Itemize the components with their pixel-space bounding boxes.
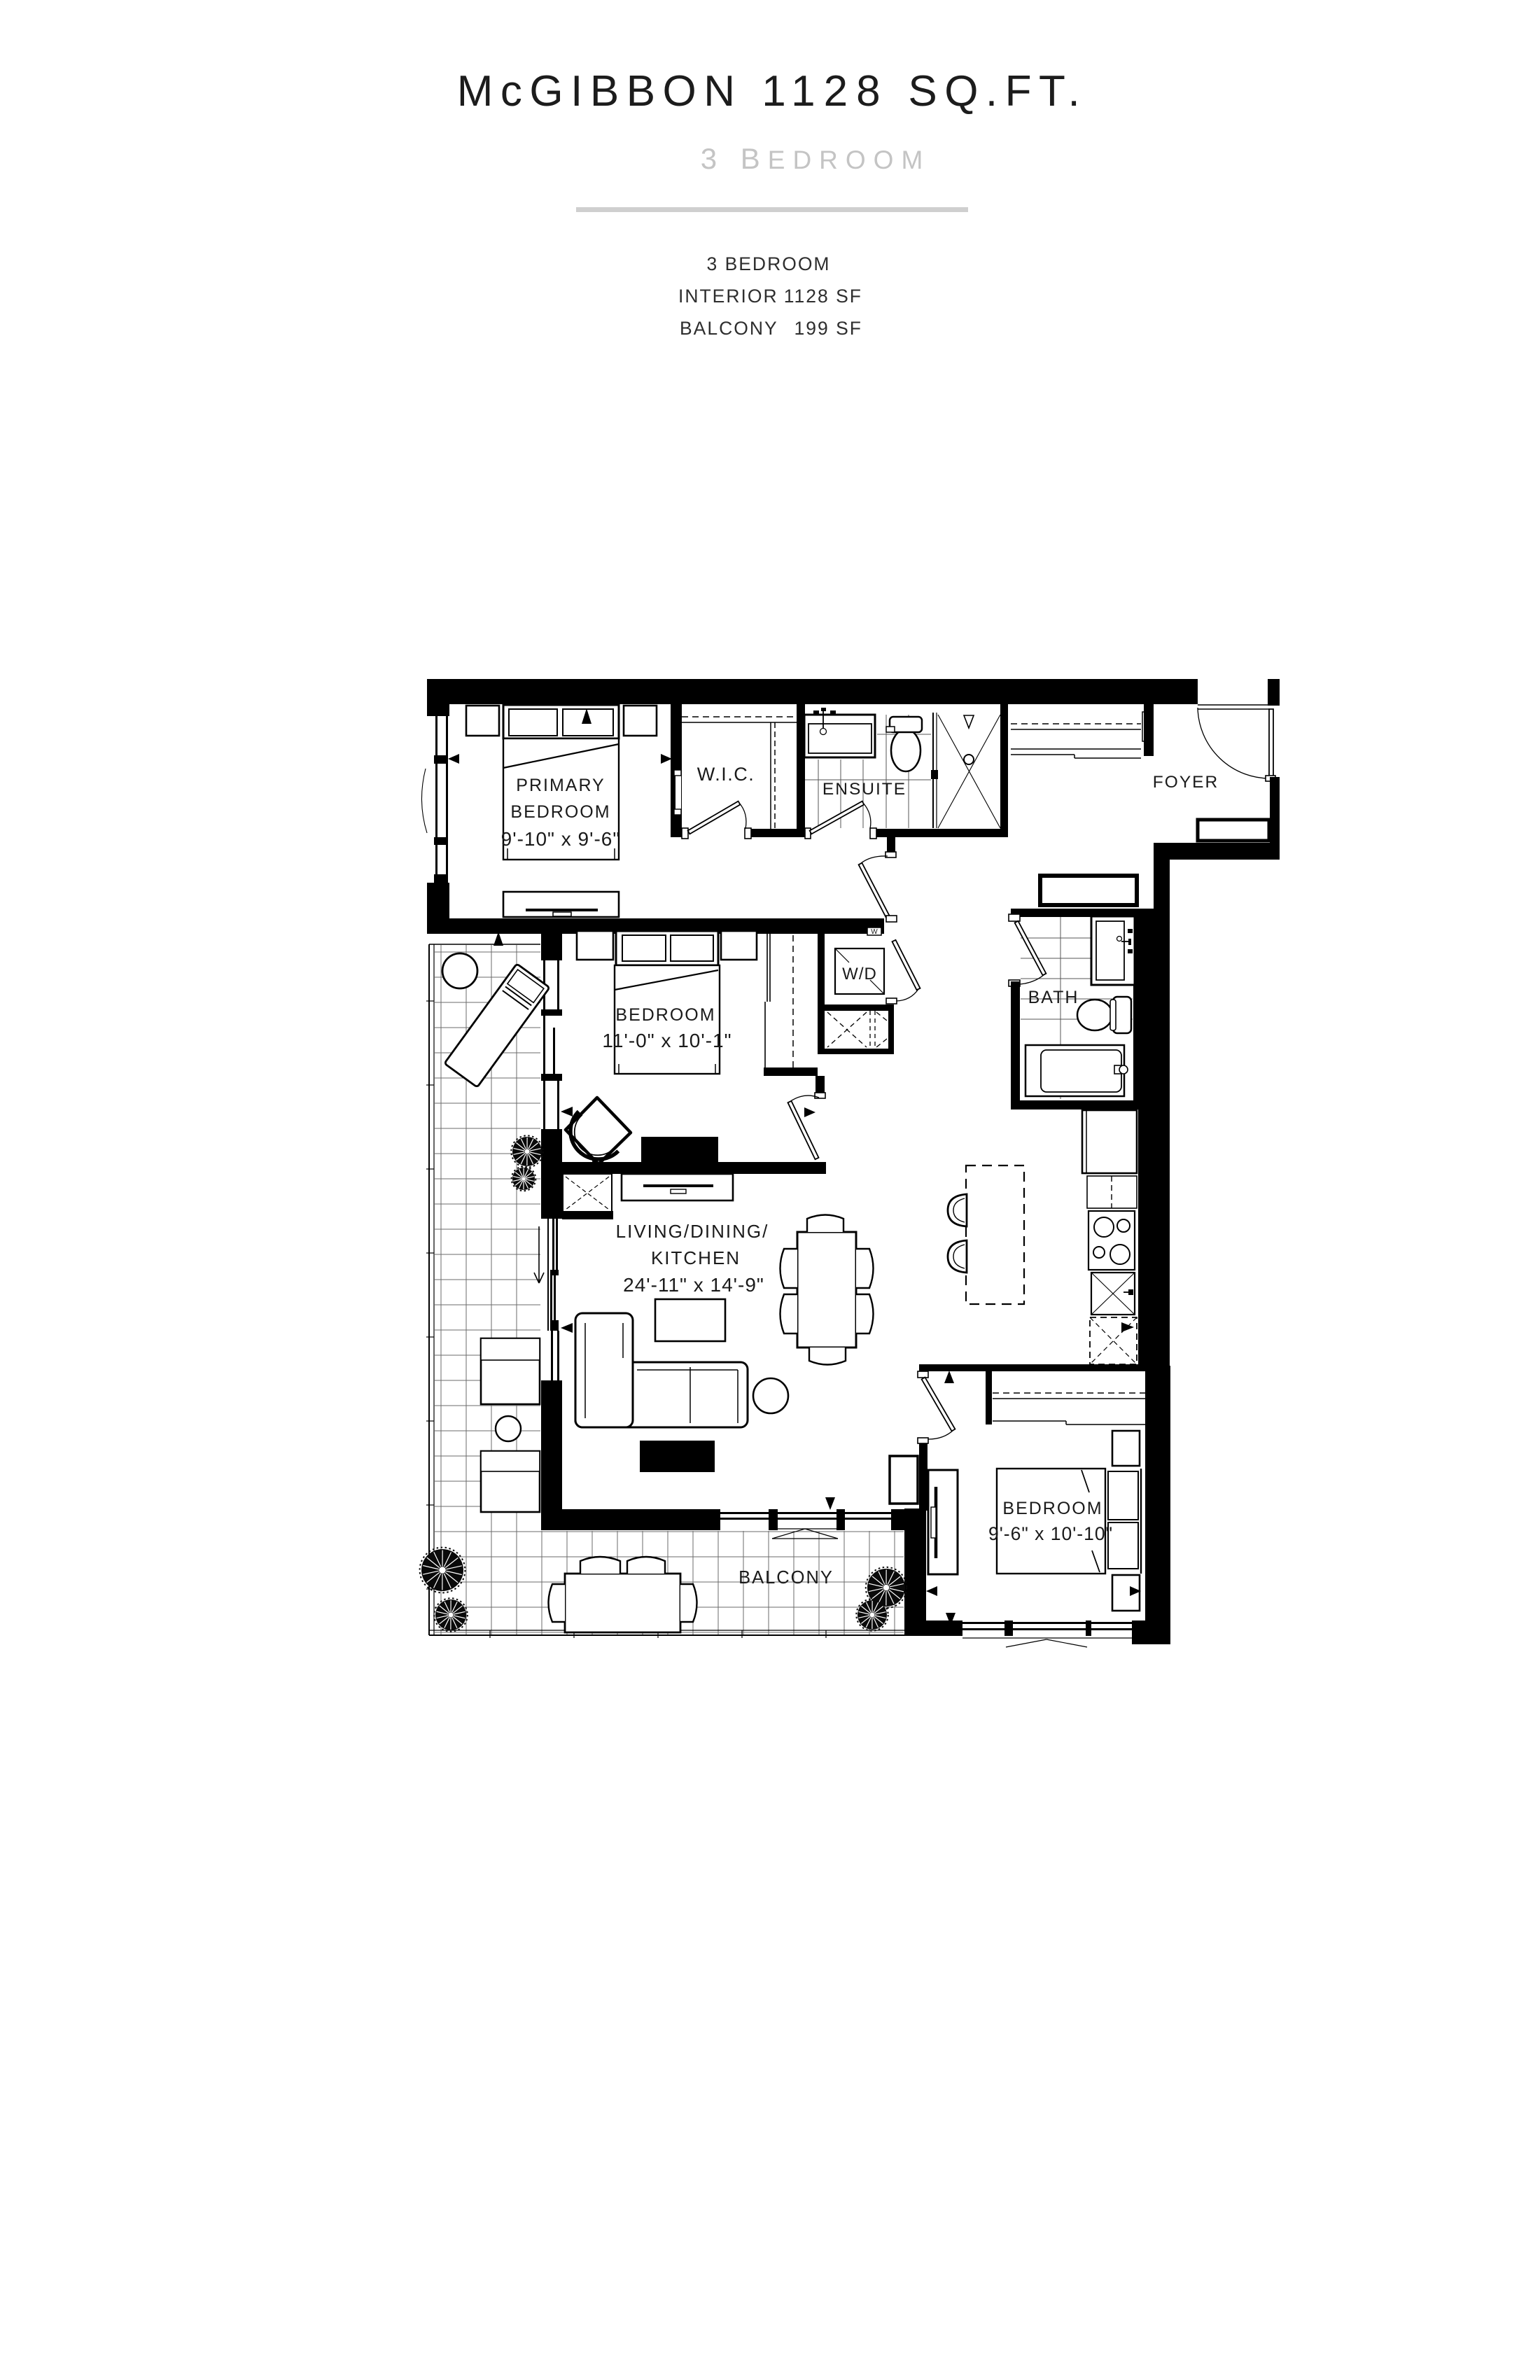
svg-text:W/D: W/D <box>842 965 877 983</box>
svg-text:BEDROOM: BEDROOM <box>615 1005 715 1025</box>
svg-text:3 BEDROOM: 3 BEDROOM <box>701 142 931 175</box>
svg-text:11'-0" x 10'-1": 11'-0" x 10'-1" <box>602 1030 731 1051</box>
svg-text:24'-11" x 14'-9": 24'-11" x 14'-9" <box>623 1274 764 1296</box>
svg-text:W: W <box>871 928 878 936</box>
svg-text:BALCONY: BALCONY <box>680 318 778 339</box>
svg-text:BEDROOM: BEDROOM <box>510 802 610 822</box>
svg-text:3 BEDROOM: 3 BEDROOM <box>706 253 830 274</box>
svg-text:PRIMARY: PRIMARY <box>516 776 605 795</box>
svg-text:INTERIOR: INTERIOR <box>678 286 778 307</box>
svg-text:ENSUITE: ENSUITE <box>822 780 906 799</box>
svg-text:1128 SF: 1128 SF <box>784 286 862 307</box>
svg-text:McGIBBON 1128 SQ.FT.: McGIBBON 1128 SQ.FT. <box>457 67 1088 115</box>
svg-text:W.I.C.: W.I.C. <box>697 764 755 785</box>
svg-text:BATH: BATH <box>1028 988 1079 1007</box>
svg-text:9'-10" x 9'-6": 9'-10" x 9'-6" <box>501 828 621 850</box>
svg-text:BALCONY: BALCONY <box>738 1568 834 1588</box>
svg-text:FOYER: FOYER <box>1153 773 1219 792</box>
svg-text:LIVING/DINING/: LIVING/DINING/ <box>616 1221 769 1242</box>
svg-text:BEDROOM: BEDROOM <box>1002 1499 1102 1518</box>
svg-text:KITCHEN: KITCHEN <box>651 1247 741 1268</box>
svg-text:199 SF: 199 SF <box>794 318 862 339</box>
svg-text:9'-6" x 10'-10": 9'-6" x 10'-10" <box>988 1523 1113 1544</box>
